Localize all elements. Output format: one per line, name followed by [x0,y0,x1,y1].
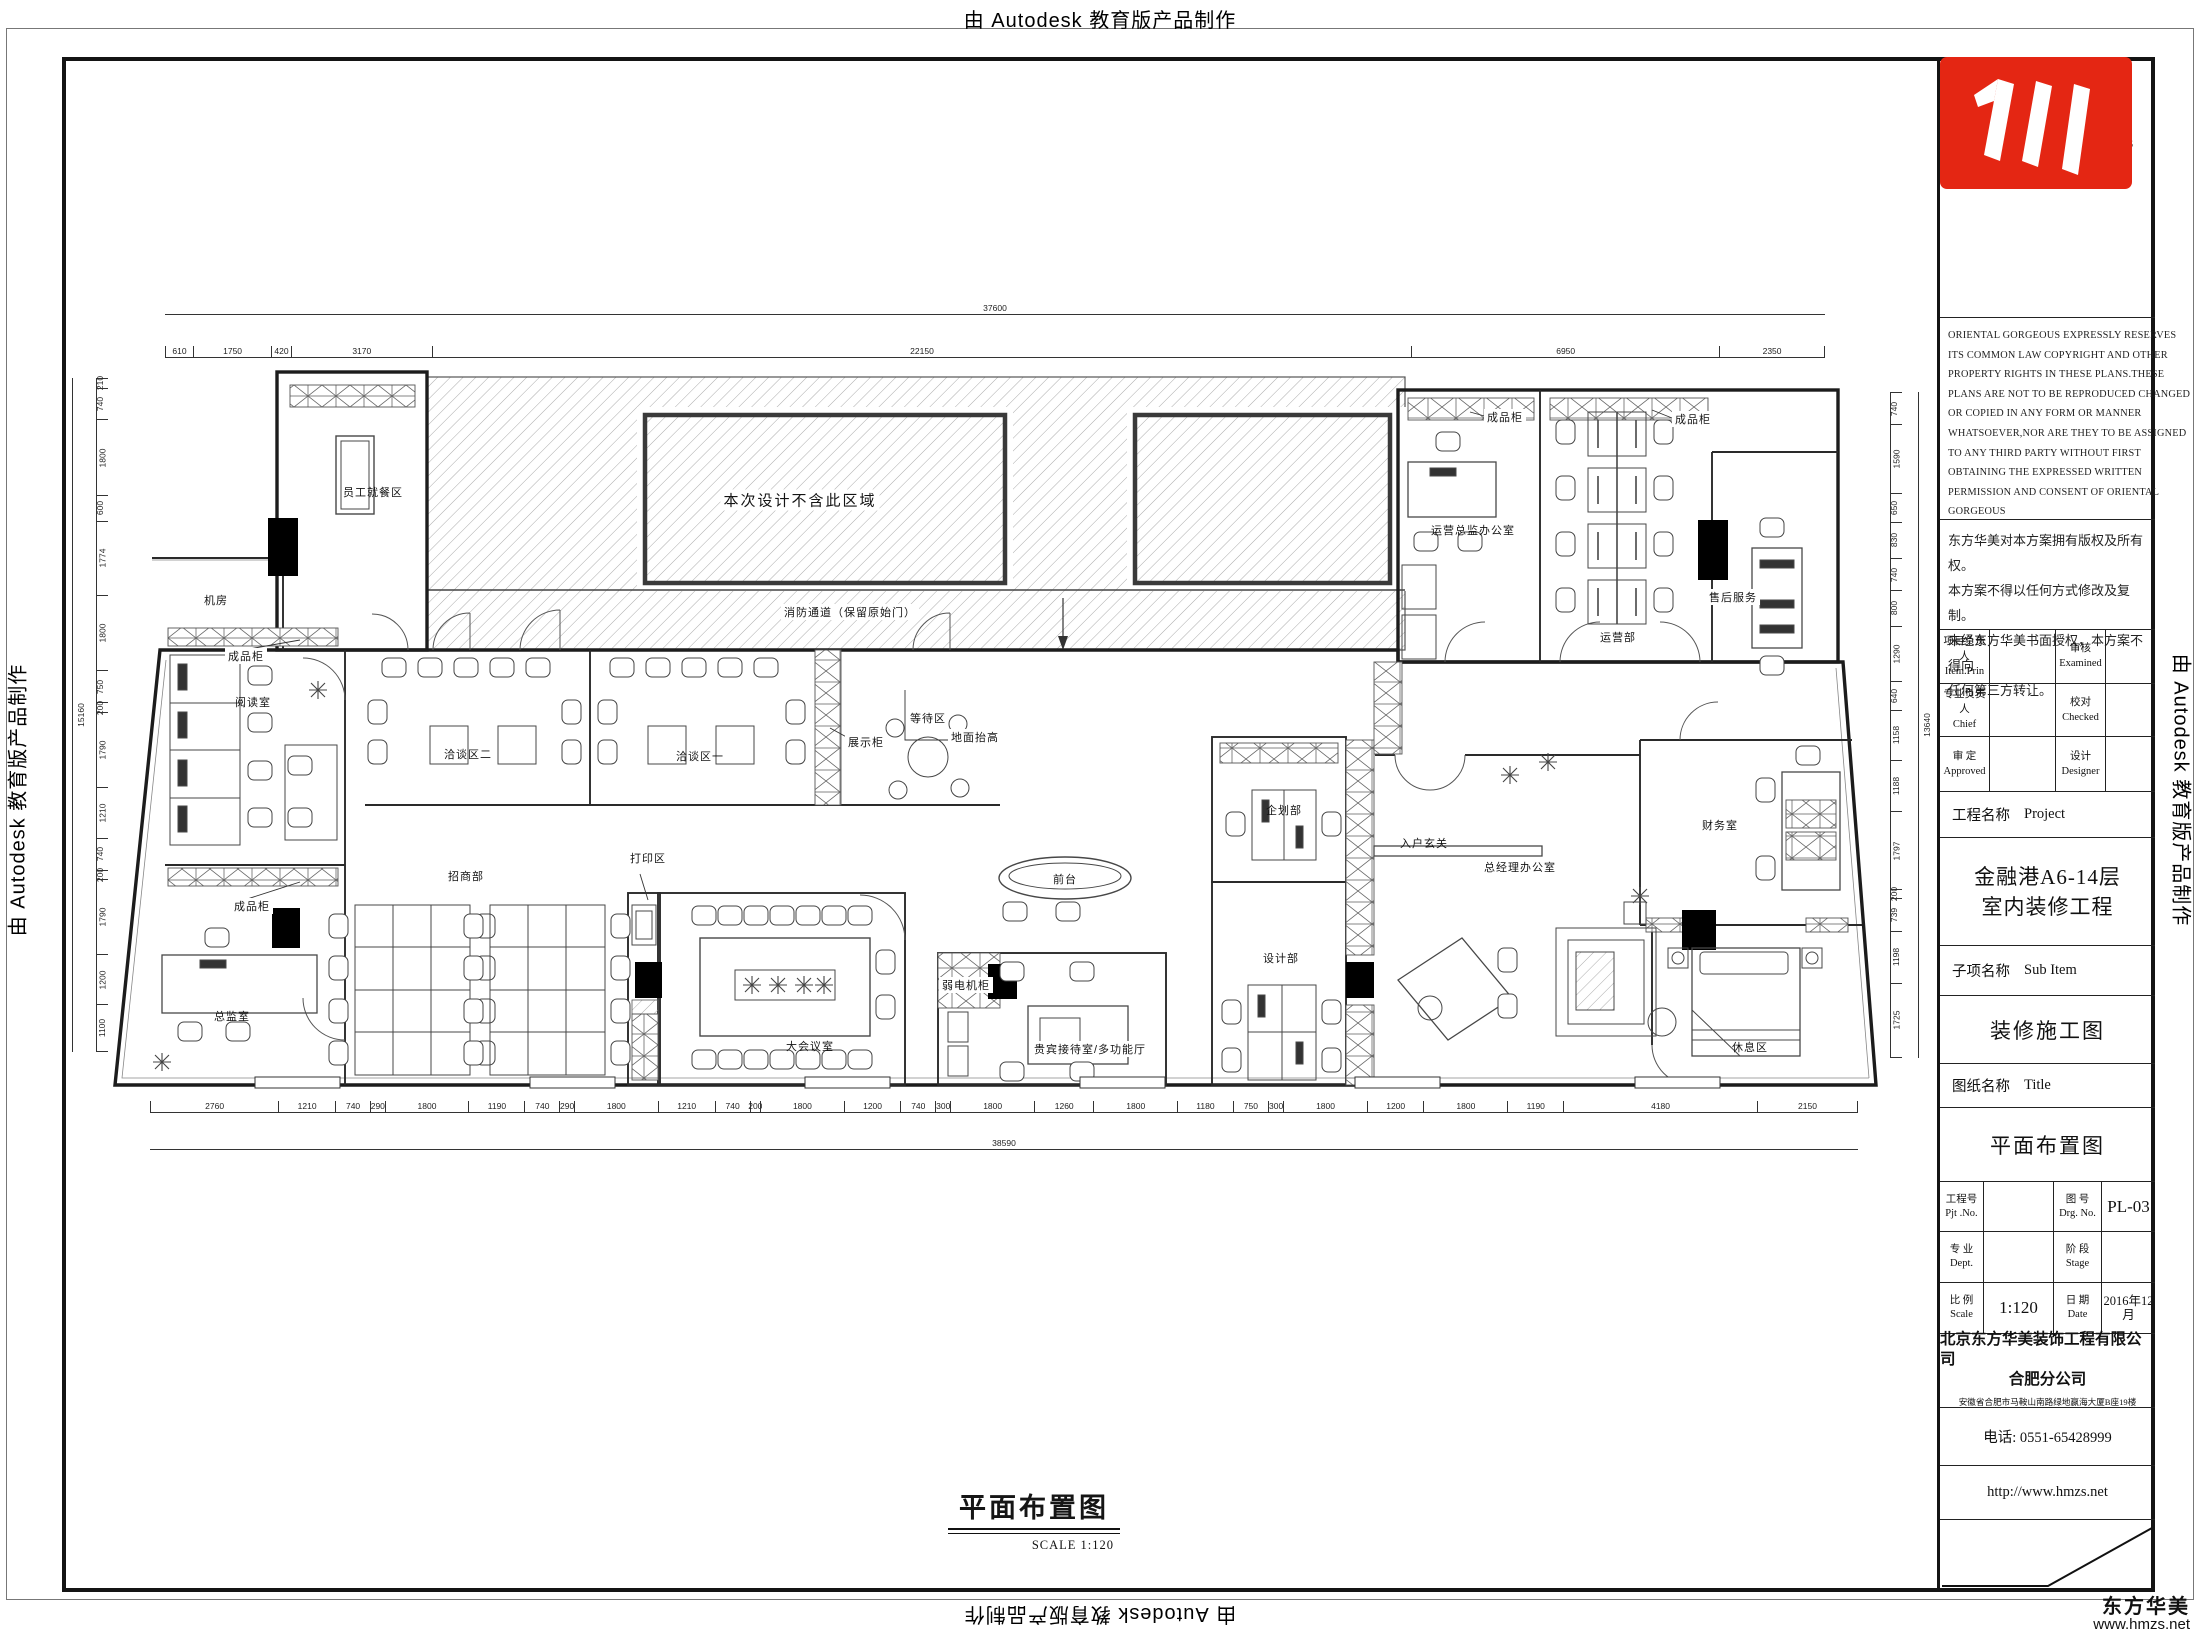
title-underline-2 [948,1533,1120,1534]
room-label: 洽谈区二 [444,746,492,762]
room-label: 弱电机柜 [939,977,993,993]
dimension-chain-vertical: 2107401800600177418007502001790121074020… [96,378,108,1052]
plan-title-text: 平面布置图 [948,1486,1120,1525]
dimension-segment: 300 [935,1101,950,1112]
dimension-segment: 1790 [97,712,108,787]
dimension-segment: 200 [97,870,108,879]
dimension-segment: 1100 [97,1004,108,1052]
dimension-segment: 1210 [97,787,108,838]
room-label: 员工就餐区 [343,484,403,500]
dimension-segment: 2350 [1719,346,1825,357]
dimension-segment: 6950 [1411,346,1719,357]
plan-footer-title: 平面布置图 SCALE 1:120 [948,1486,1120,1553]
dimension-segment: 1800 [385,1101,469,1112]
dimension-segment: 1200 [844,1101,900,1112]
dimension-segment: 420 [271,346,291,357]
room-label: 贵宾接待室/多功能厅 [1031,1041,1149,1057]
dimension-segment: 1190 [468,1101,524,1112]
room-label: 休息区 [1732,1039,1768,1055]
dimension-segment: 750 [97,670,108,702]
room-label: 打印区 [627,850,669,866]
dimension-segment: 1800 [950,1101,1034,1112]
dimension-overall-vertical: 13640 [1918,392,1930,1058]
dimension-segment: 22150 [432,346,1411,357]
dimension-segment: 1210 [658,1101,715,1112]
dimension-segment: 200 [97,702,108,711]
dimension-segment: 1800 [97,419,108,494]
dimension-segment: 1590 [1891,424,1902,493]
dimension-segment: 1800 [1093,1101,1177,1112]
room-label: 售后服务 [1706,589,1760,605]
plan-scale-text: SCALE 1:120 [948,1538,1120,1553]
dimension-overall-vertical: 15160 [72,378,84,1052]
page: { "page": { "autodesk_credit": "由 Autode… [0,0,2200,1632]
dimension-segment: 300 [1268,1101,1283,1112]
dimension-segment: 740 [715,1101,750,1112]
dimension-segment: 290 [370,1101,384,1112]
dimension-segment: 610 [165,346,193,357]
dimension-segment: 1180 [1177,1101,1232,1112]
dimension-chain-vertical: 7401590650830740800129064011581188179720… [1890,392,1902,1058]
dimension-segment: 1158 [1891,710,1902,760]
dimension-segment: 740 [97,388,108,420]
dimension-segment: 739 [1891,898,1902,930]
dimension-segment: 1800 [1423,1101,1507,1112]
dimension-segment: 1190 [1507,1101,1563,1112]
dimension-segment: 830 [1891,522,1902,558]
room-label: 前台 [1053,871,1077,887]
dimension-segment: 1210 [278,1101,335,1112]
dimension-segment: 740 [1891,558,1902,590]
room-label: 展示柜 [845,734,887,750]
dimension-segment: 1790 [97,879,108,954]
room-label: 成品柜 [1484,409,1526,425]
dimension-segment: 740 [524,1101,559,1112]
dimension-segment: 290 [559,1101,573,1112]
dimension-segment: 2760 [150,1101,278,1112]
room-label: 大会议室 [786,1038,834,1054]
dimension-segment: 640 [1891,681,1902,709]
dimension-overall: 37600 [165,303,1825,315]
dimension-segment: 1290 [1891,626,1902,682]
dimension-segment: 2150 [1757,1101,1858,1112]
dimension-segment: 1725 [1891,983,1902,1058]
dimension-segment: 740 [1891,392,1902,424]
room-label: 运营部 [1600,629,1636,645]
dimension-segment: 1774 [97,521,108,595]
dimension-segment: 1260 [1034,1101,1093,1112]
room-label: 阅读室 [235,694,271,710]
room-label: 等待区 [910,710,946,726]
dimension-segment: 3170 [291,346,432,357]
room-label: 设计部 [1263,950,1299,966]
dimension-segment: 750 [1233,1101,1269,1112]
dimension-segment: 200 [750,1101,760,1112]
dimension-segment: 1198 [1891,931,1902,983]
dimension-chain: 610175042031702215069502350 [165,346,1825,358]
dimension-segment: 1750 [193,346,271,357]
dimension-chain: 2760121074029018001190740290180012107402… [150,1101,1858,1113]
dimension-segment: 740 [900,1101,935,1112]
dimension-segment: 1797 [1891,811,1902,888]
room-label: 运营总监办公室 [1431,522,1515,538]
room-label: 本次设计不含此区域 [720,490,879,511]
room-label: 洽谈区一 [676,748,724,764]
dimension-segment: 4180 [1563,1101,1757,1112]
dimension-segment: 740 [335,1101,370,1112]
dimension-segment: 210 [97,378,108,388]
room-label: 入户玄关 [1400,835,1448,851]
dimension-segment: 1200 [97,954,108,1005]
dimension-segment: 1800 [760,1101,844,1112]
room-label: 成品柜 [225,648,267,664]
room-label: 财务室 [1702,817,1738,833]
dimension-segment: 600 [97,495,108,521]
dimension-segment: 200 [1891,889,1902,899]
room-label: 企划部 [1266,802,1302,818]
dimension-segment: 1188 [1891,760,1902,812]
room-label: 成品柜 [1672,411,1714,427]
dimension-overall: 38590 [150,1138,1858,1150]
room-label: 招商部 [448,868,484,884]
plan-annotation-layer: 本次设计不含此区域消防通道（保留原始门）员工就餐区机房成品柜阅读室成品柜总监室招… [0,0,2200,1632]
room-label: 总监室 [214,1008,250,1024]
room-label: 总经理办公室 [1484,859,1556,875]
dimension-segment: 1800 [97,595,108,670]
title-underline [948,1528,1120,1530]
dimension-segment: 800 [1891,590,1902,625]
room-label: 机房 [204,592,228,608]
dimension-segment: 1800 [574,1101,658,1112]
dimension-segment: 1800 [1283,1101,1367,1112]
dimension-segment: 650 [1891,493,1902,522]
dimension-segment: 1200 [1367,1101,1423,1112]
room-label: 消防通道（保留原始门） [781,604,919,620]
room-label: 地面抬高 [948,729,1002,745]
dimension-segment: 740 [97,838,108,870]
room-label: 成品柜 [231,898,273,914]
